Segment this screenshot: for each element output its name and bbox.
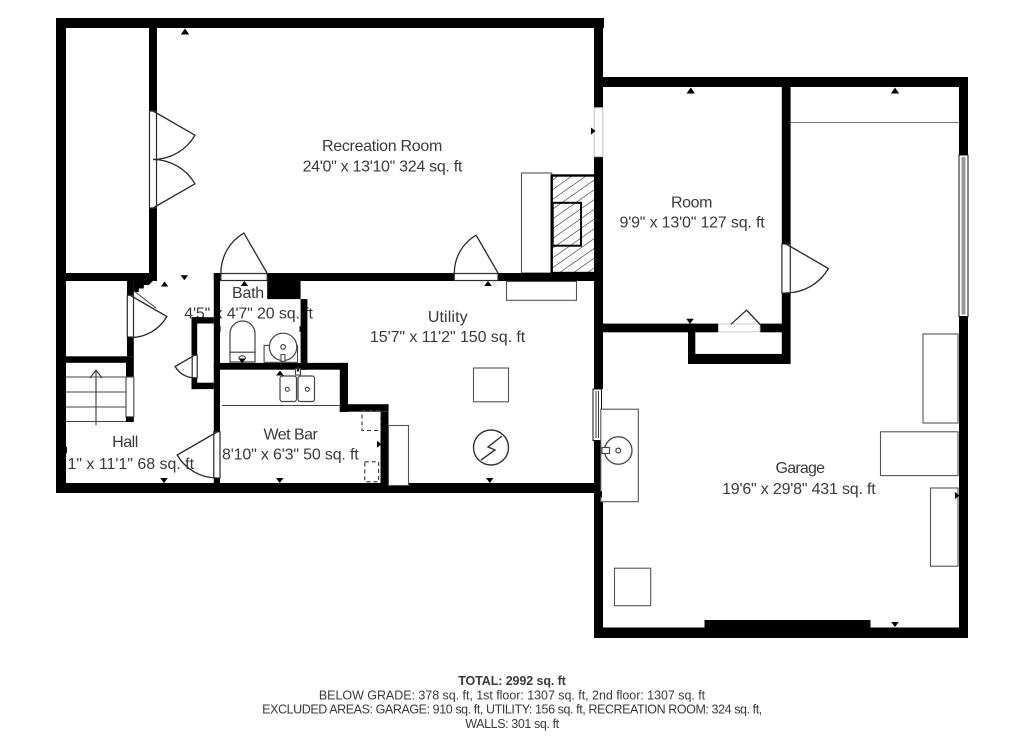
svg-text:Recreation Room: Recreation Room (322, 138, 442, 155)
svg-text:1" x 11'1" 68 sq. ft: 1" x 11'1" 68 sq. ft (68, 456, 195, 473)
svg-text:8'10" x 6'3" 50 sq. ft: 8'10" x 6'3" 50 sq. ft (222, 446, 359, 463)
svg-text:9'9" x 13'0" 127 sq. ft: 9'9" x 13'0" 127 sq. ft (620, 215, 766, 232)
svg-text:Utility: Utility (428, 309, 468, 326)
svg-text:Wet Bar: Wet Bar (264, 426, 319, 443)
svg-text:15'7" x 11'2" 150 sq. ft: 15'7" x 11'2" 150 sq. ft (370, 329, 526, 346)
svg-text:Room: Room (671, 195, 712, 212)
svg-text:WALLS: 301 sq. ft: WALLS: 301 sq. ft (465, 717, 559, 731)
svg-text:19'6" x 29'8" 431 sq. ft: 19'6" x 29'8" 431 sq. ft (722, 481, 876, 498)
svg-text:Garage: Garage (776, 460, 826, 477)
svg-text:Bath: Bath (232, 285, 264, 302)
svg-text:TOTAL: 2992 sq. ft: TOTAL: 2992 sq. ft (458, 674, 566, 688)
svg-text:EXCLUDED AREAS: GARAGE: 910 sq: EXCLUDED AREAS: GARAGE: 910 sq. ft, UTIL… (262, 703, 762, 717)
svg-text:BELOW GRADE: 378 sq. ft, 1st f: BELOW GRADE: 378 sq. ft, 1st floor: 1307… (319, 689, 706, 703)
svg-text:Hall: Hall (112, 434, 138, 451)
svg-text:24'0" x 13'10" 324 sq. ft: 24'0" x 13'10" 324 sq. ft (303, 159, 463, 176)
